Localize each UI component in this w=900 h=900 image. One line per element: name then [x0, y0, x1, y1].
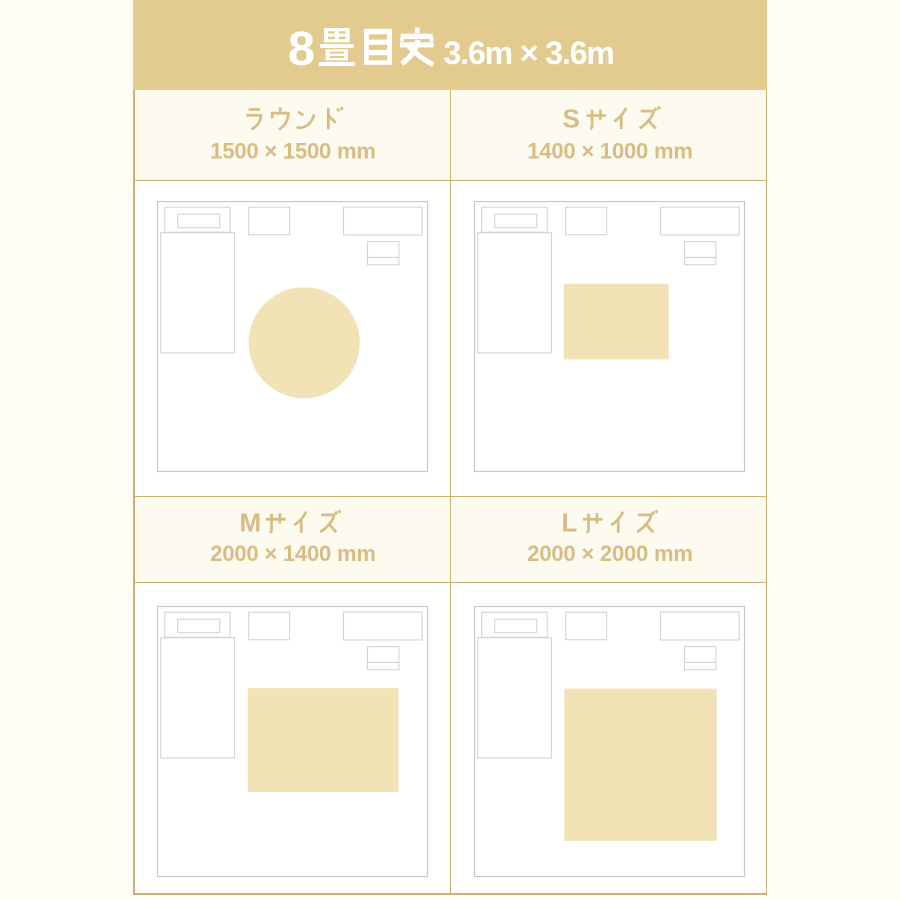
svg-text:2000 × 2000 mm: 2000 × 2000 mm	[527, 541, 692, 566]
svg-text:1400 × 1000 mm: 1400 × 1000 mm	[527, 139, 692, 164]
svg-text:M: M	[240, 508, 262, 538]
svg-text:S: S	[563, 104, 580, 134]
svg-text:1500 × 1500 mm: 1500 × 1500 mm	[210, 139, 375, 164]
svg-text:8: 8	[288, 22, 315, 76]
svg-text:L: L	[562, 508, 578, 538]
svg-text:2000 × 1400 mm: 2000 × 1400 mm	[210, 541, 375, 566]
svg-text:3.6m × 3.6m: 3.6m × 3.6m	[444, 35, 614, 71]
